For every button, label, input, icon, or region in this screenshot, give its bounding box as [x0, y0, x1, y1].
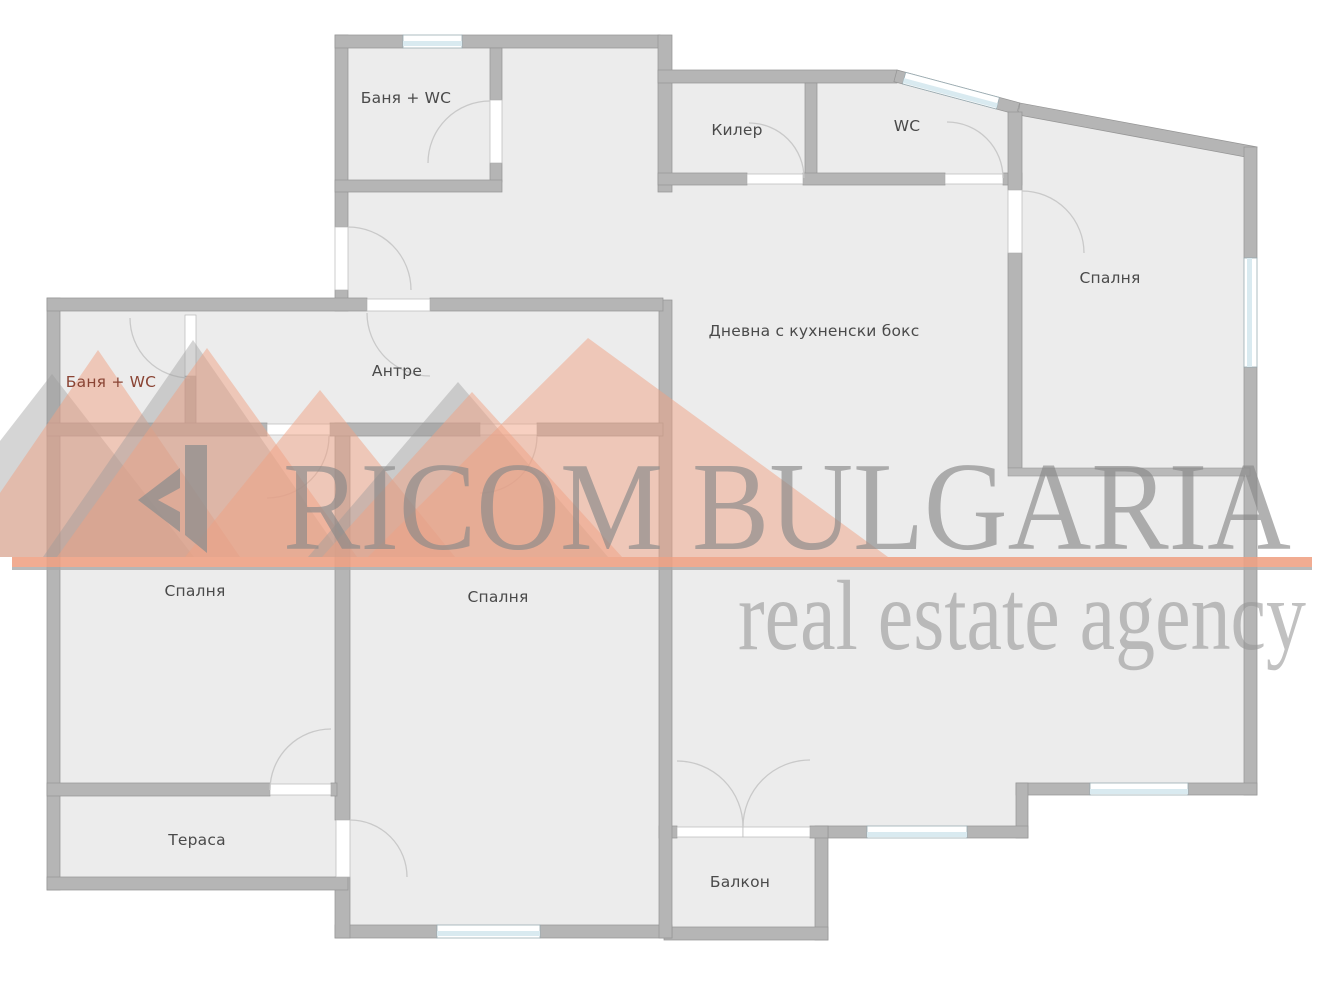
door-bath-top [490, 100, 502, 163]
window-bedroom-middle [437, 925, 540, 938]
room-label-terrace: Тераса [168, 831, 226, 849]
floor-plan-page: RICOM BULGARIA real estate agency Баня +… [0, 0, 1317, 1000]
door-wc [945, 174, 1003, 184]
door-antre [367, 299, 430, 311]
window-bedroom-right [1244, 258, 1257, 367]
door-entrance [335, 227, 348, 290]
window-bath-top [403, 35, 462, 48]
room-label-living: Дневна с кухненски бокс [709, 322, 920, 340]
watermark-tagline-text: real estate agency [738, 560, 1306, 671]
room-label-bath-wc-top: Баня + WC [361, 89, 451, 107]
window-living-bottom-right [1090, 783, 1188, 795]
room-label-bath-wc-left: Баня + WC [66, 373, 156, 391]
room-label-bedroom-right: Спалня [1079, 269, 1140, 287]
room-label-bedroom-middle: Спалня [467, 588, 528, 606]
door-bedroom-terrace [336, 820, 350, 877]
room-label-bedroom-left: Спалня [164, 582, 225, 600]
room-label-kiler: Килер [711, 121, 762, 139]
room-label-wc: WC [894, 117, 921, 135]
room-label-balcony: Балкон [710, 873, 770, 891]
watermark-brand-text: RICOM BULGARIA [283, 438, 1291, 577]
door-kiler [747, 174, 803, 184]
door-bedroom-right [1008, 190, 1022, 253]
floor-plan-drawing: RICOM BULGARIA real estate agency [0, 0, 1317, 1000]
window-living-bottom-mid [867, 826, 967, 838]
door-terrace [270, 784, 331, 795]
room-label-antre: Антре [372, 362, 422, 380]
